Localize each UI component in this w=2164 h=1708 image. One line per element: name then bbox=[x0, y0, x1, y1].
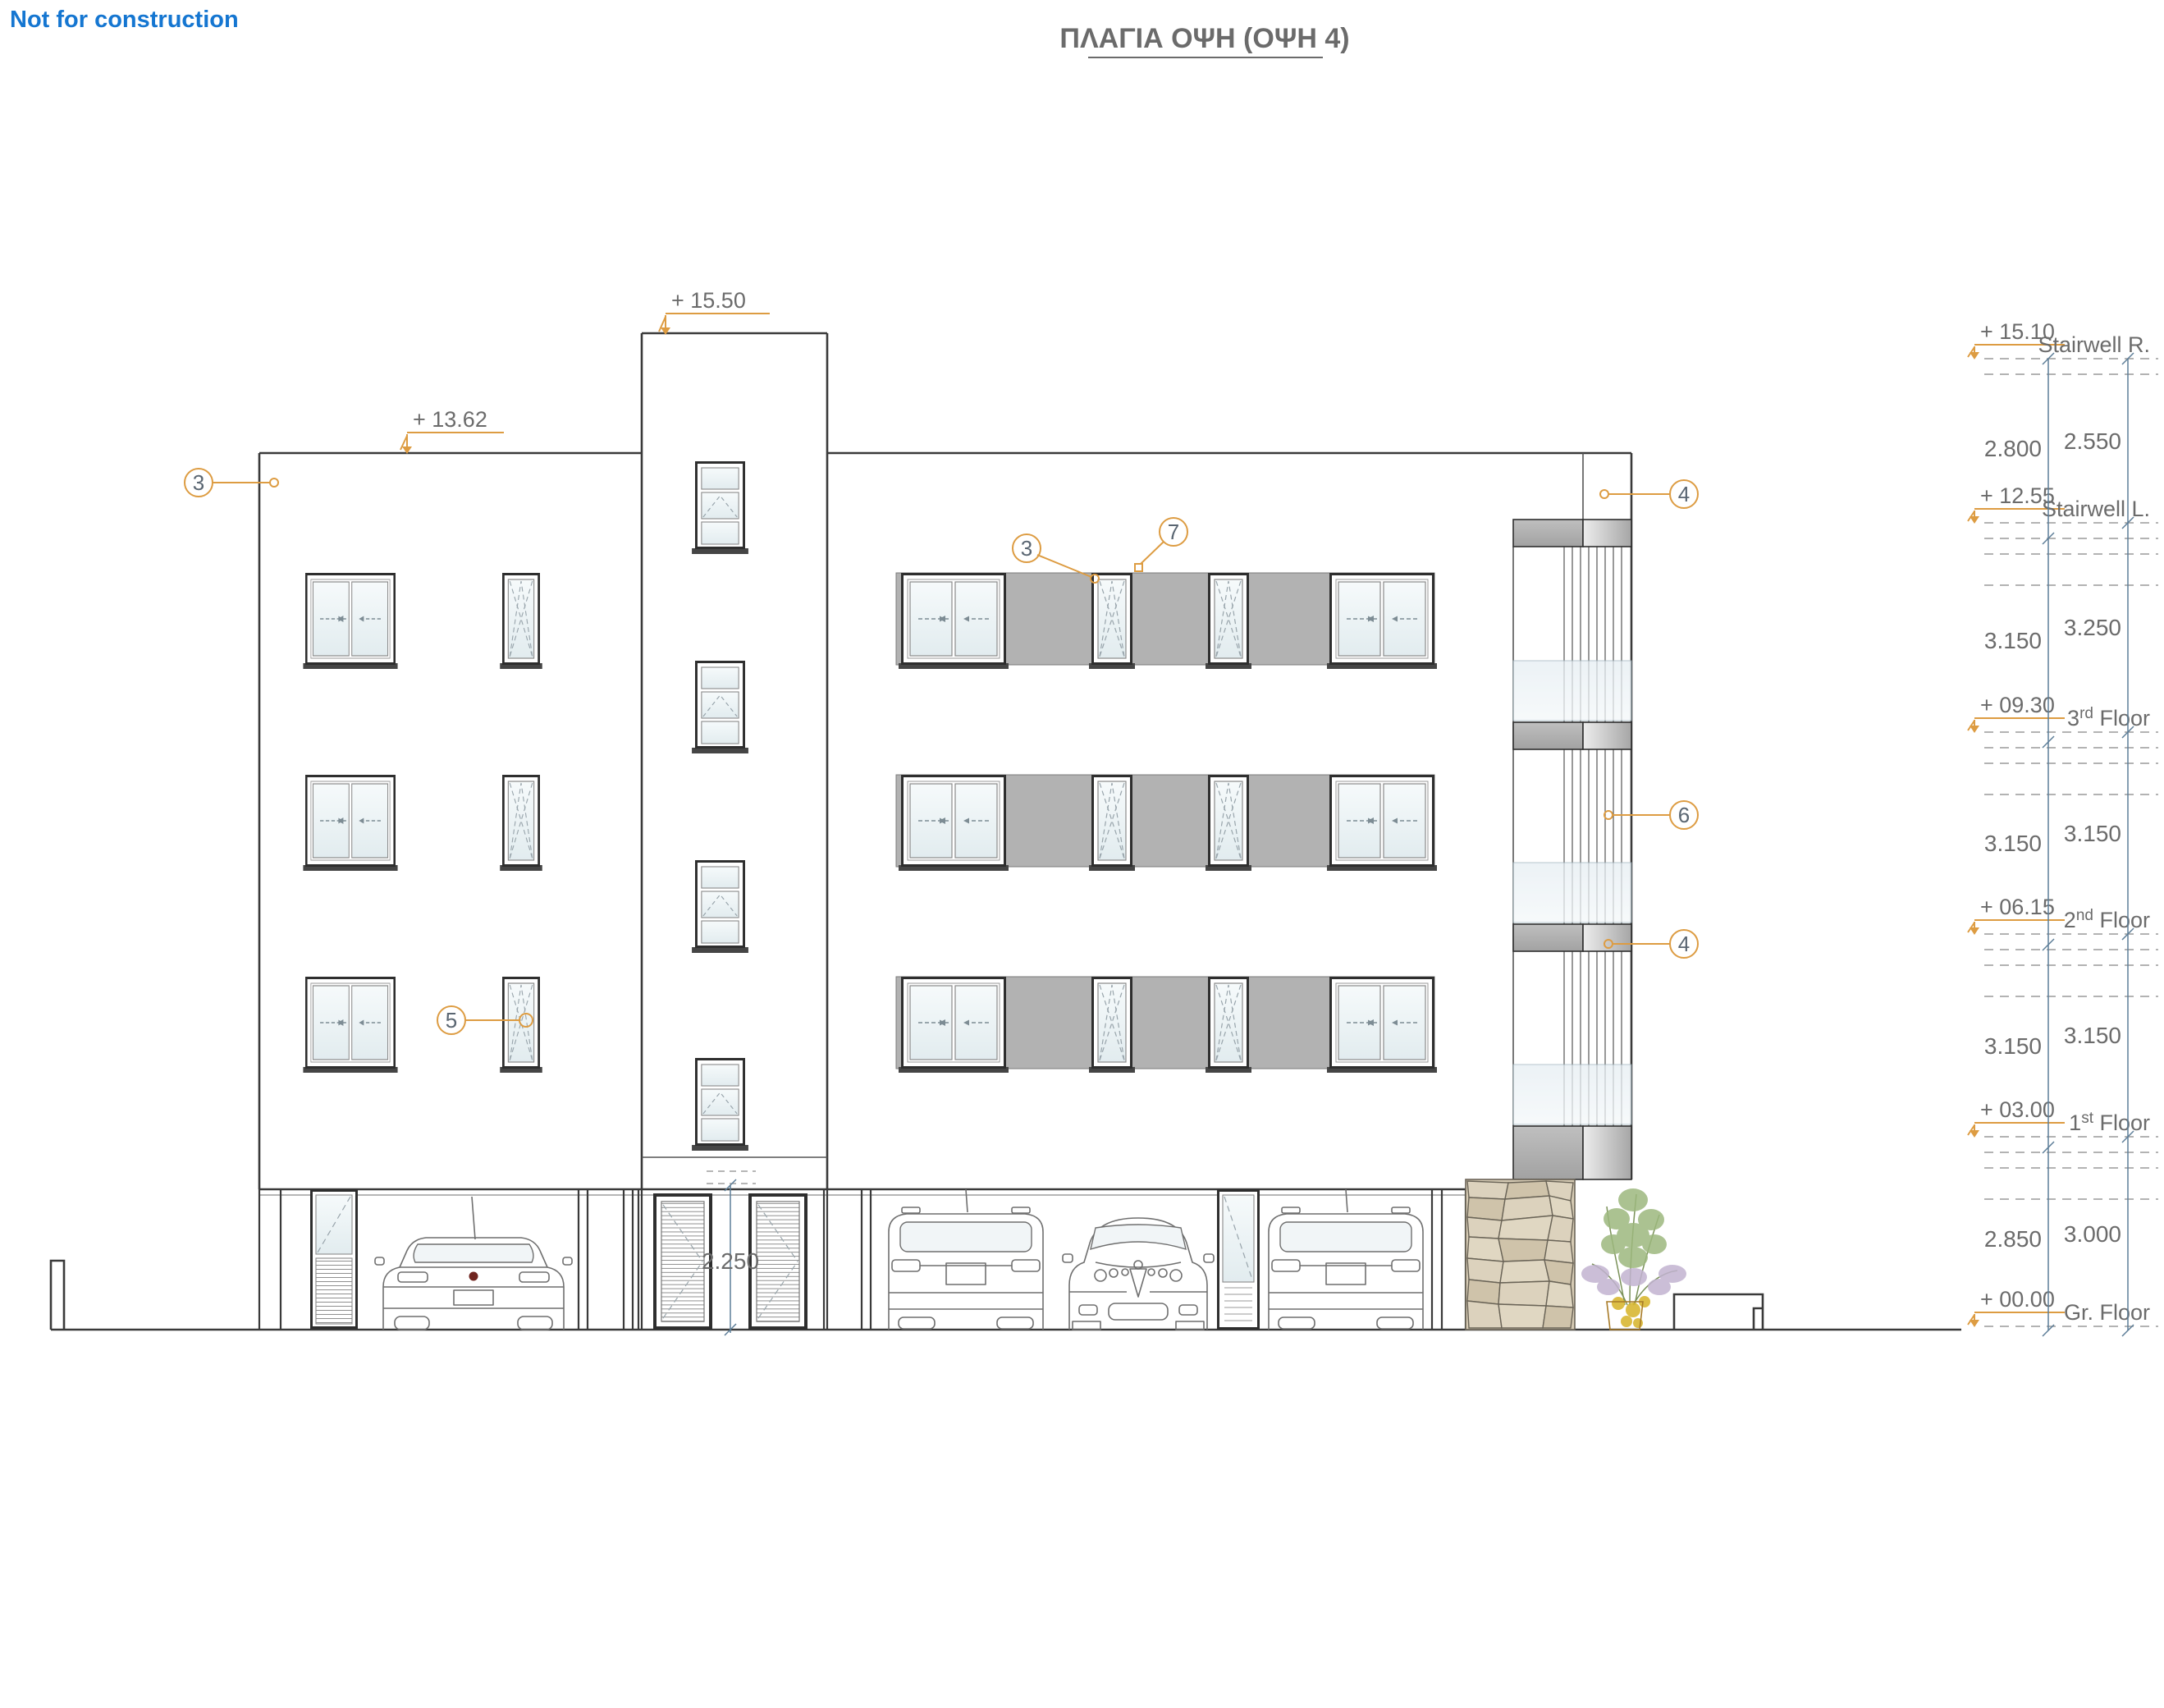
car-suv-rear-2 bbox=[1269, 1189, 1423, 1330]
callout-number: 5 bbox=[446, 1008, 457, 1033]
dimension-value: 3.000 bbox=[2064, 1221, 2121, 1247]
dimension-value: 3.150 bbox=[1984, 1033, 2042, 1059]
ground-floor: 2.250 bbox=[259, 1171, 1763, 1335]
double-window bbox=[899, 776, 1009, 872]
window-row-1st-floor bbox=[896, 977, 1437, 1073]
narrow-window bbox=[1206, 575, 1251, 670]
stair-window bbox=[692, 1060, 748, 1152]
dimension-value: 3.150 bbox=[2064, 821, 2121, 846]
drawing-sheet: Not for construction ΠΛΑΓΙΑ ΟΨΗ (ΟΨΗ 4) bbox=[0, 0, 2164, 1708]
callout-number: 3 bbox=[1021, 536, 1032, 561]
double-window bbox=[1327, 776, 1437, 872]
elevation-marker-main-roof: + 13.62 bbox=[400, 407, 504, 454]
marker-06-15: + 06.15 bbox=[1968, 895, 2065, 935]
door-height-value: 2.250 bbox=[702, 1248, 759, 1274]
callouts: 3 5 3 7 4 6 bbox=[185, 469, 1698, 1034]
marker-09-30: + 09.30 bbox=[1968, 693, 2065, 733]
double-window bbox=[303, 776, 397, 872]
double-window bbox=[899, 575, 1009, 670]
callout-number: 7 bbox=[1168, 520, 1179, 544]
double-window bbox=[303, 575, 397, 670]
marker-03-00: + 03.00 bbox=[1968, 1097, 2065, 1138]
callout-number: 3 bbox=[193, 470, 204, 495]
narrow-window bbox=[1206, 776, 1251, 872]
callout-3-left-wall: 3 bbox=[185, 469, 278, 497]
narrow-window bbox=[1089, 575, 1135, 670]
callout-number: 4 bbox=[1678, 482, 1690, 506]
dimension-value: 3.150 bbox=[1984, 831, 2042, 856]
double-window bbox=[303, 978, 397, 1074]
drawing-title: ΠΛΑΓΙΑ ΟΨΗ (ΟΨΗ 4) bbox=[1059, 23, 1349, 57]
narrow-window bbox=[1089, 978, 1135, 1074]
window-row-2nd-floor bbox=[896, 775, 1437, 871]
car-sedan-rear bbox=[375, 1197, 572, 1330]
elevation-marker-tower-roof: + 15.50 bbox=[659, 288, 770, 335]
narrow-window bbox=[500, 575, 542, 670]
dimension-value: 2.850 bbox=[1984, 1226, 2042, 1252]
entrance: 2.250 bbox=[655, 1171, 806, 1335]
double-window bbox=[1327, 978, 1437, 1074]
watermark-not-for-construction: Not for construction bbox=[10, 7, 239, 33]
level-scale-column: + 15.10 + 12.55 + 09.30 + bbox=[1968, 319, 2158, 1336]
balcony-column bbox=[1513, 520, 1631, 1179]
boundary-wall-right bbox=[1674, 1294, 1763, 1330]
car-front-view bbox=[1063, 1218, 1214, 1330]
tower-windows bbox=[692, 463, 748, 1152]
callout-4-parapet: 4 bbox=[1600, 480, 1698, 508]
stair-window bbox=[692, 862, 748, 954]
floor-label: Gr. Floor bbox=[2064, 1300, 2150, 1325]
scale-elevation-markers: + 15.10 + 12.55 + 09.30 + bbox=[1968, 319, 2065, 1327]
narrow-window bbox=[1206, 978, 1251, 1074]
right-block-window-rows bbox=[896, 573, 1437, 1073]
floor-label: 2nd Floor bbox=[2064, 907, 2150, 932]
floor-label: 3rd Floor bbox=[2067, 705, 2150, 730]
callout-number: 6 bbox=[1678, 803, 1690, 827]
dimension-value: 3.150 bbox=[2064, 1023, 2121, 1048]
narrow-window bbox=[1089, 776, 1135, 872]
callout-6-louvers: 6 bbox=[1604, 801, 1698, 829]
left-block-windows bbox=[303, 575, 542, 1074]
elevation-value: + 13.62 bbox=[413, 407, 487, 432]
plant bbox=[1581, 1188, 1686, 1330]
elevation-value: + 15.50 bbox=[671, 288, 746, 313]
stone-pillar bbox=[1466, 1179, 1575, 1330]
narrow-window bbox=[500, 776, 542, 872]
dimension-value: 3.250 bbox=[2064, 615, 2121, 640]
double-window bbox=[899, 978, 1009, 1074]
marker-00-00: + 00.00 bbox=[1968, 1287, 2065, 1327]
callout-number: 4 bbox=[1678, 932, 1690, 956]
louvered-side-panel bbox=[312, 1191, 357, 1328]
stair-window bbox=[692, 662, 748, 754]
floor-label: 1st Floor bbox=[2069, 1110, 2150, 1135]
elevation-value: + 09.30 bbox=[1980, 693, 2055, 717]
dimension-value: 2.800 bbox=[1984, 436, 2042, 461]
car-suv-rear bbox=[889, 1189, 1043, 1330]
elevation-value: + 06.15 bbox=[1980, 895, 2055, 919]
elevation-value: + 03.00 bbox=[1980, 1097, 2055, 1122]
window-row-3rd-floor bbox=[896, 573, 1437, 669]
page-title: ΠΛΑΓΙΑ ΟΨΗ (ΟΨΗ 4) bbox=[1059, 23, 1349, 54]
boundary-wall-left bbox=[51, 1261, 64, 1330]
louver-screen-icon bbox=[1564, 547, 1622, 1126]
callout-7-band-top: 7 bbox=[1135, 518, 1187, 571]
stair-glass-door bbox=[1219, 1191, 1259, 1329]
dimension-value: 3.150 bbox=[1984, 628, 2042, 653]
dimension-value: 2.550 bbox=[2064, 428, 2121, 454]
double-window bbox=[1327, 575, 1437, 670]
elevation-value: + 00.00 bbox=[1980, 1287, 2055, 1312]
stair-window bbox=[692, 463, 748, 555]
